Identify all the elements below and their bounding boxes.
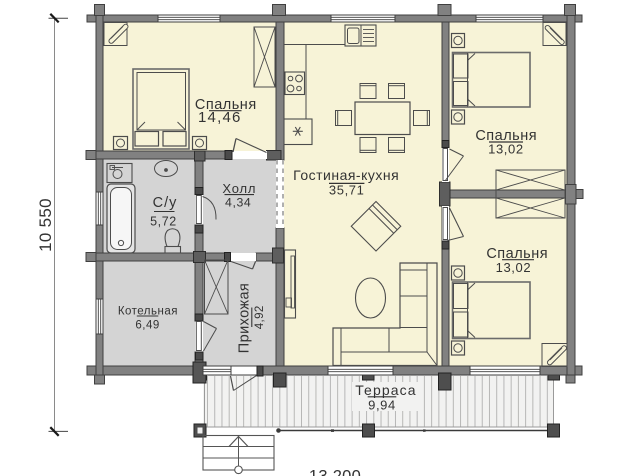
svg-text:4,92: 4,92: [254, 305, 266, 329]
svg-text:6,49: 6,49: [135, 319, 159, 331]
svg-text:4,34: 4,34: [225, 195, 251, 209]
svg-text:5,72: 5,72: [150, 215, 177, 229]
svg-text:13,02: 13,02: [488, 141, 524, 156]
svg-text:Прихожая: Прихожая: [236, 283, 252, 353]
svg-text:13,02: 13,02: [496, 260, 532, 275]
svg-text:13 200: 13 200: [309, 468, 361, 476]
svg-text:35,71: 35,71: [329, 182, 365, 197]
svg-text:Холл: Холл: [222, 181, 256, 196]
svg-text:Гостиная-кухня: Гостиная-кухня: [293, 167, 399, 183]
svg-text:9,94: 9,94: [368, 398, 396, 413]
svg-text:10 550: 10 550: [36, 198, 55, 252]
svg-text:С/у: С/у: [153, 195, 178, 211]
svg-text:14,46: 14,46: [198, 109, 242, 126]
svg-text:Терраса: Терраса: [355, 382, 416, 398]
